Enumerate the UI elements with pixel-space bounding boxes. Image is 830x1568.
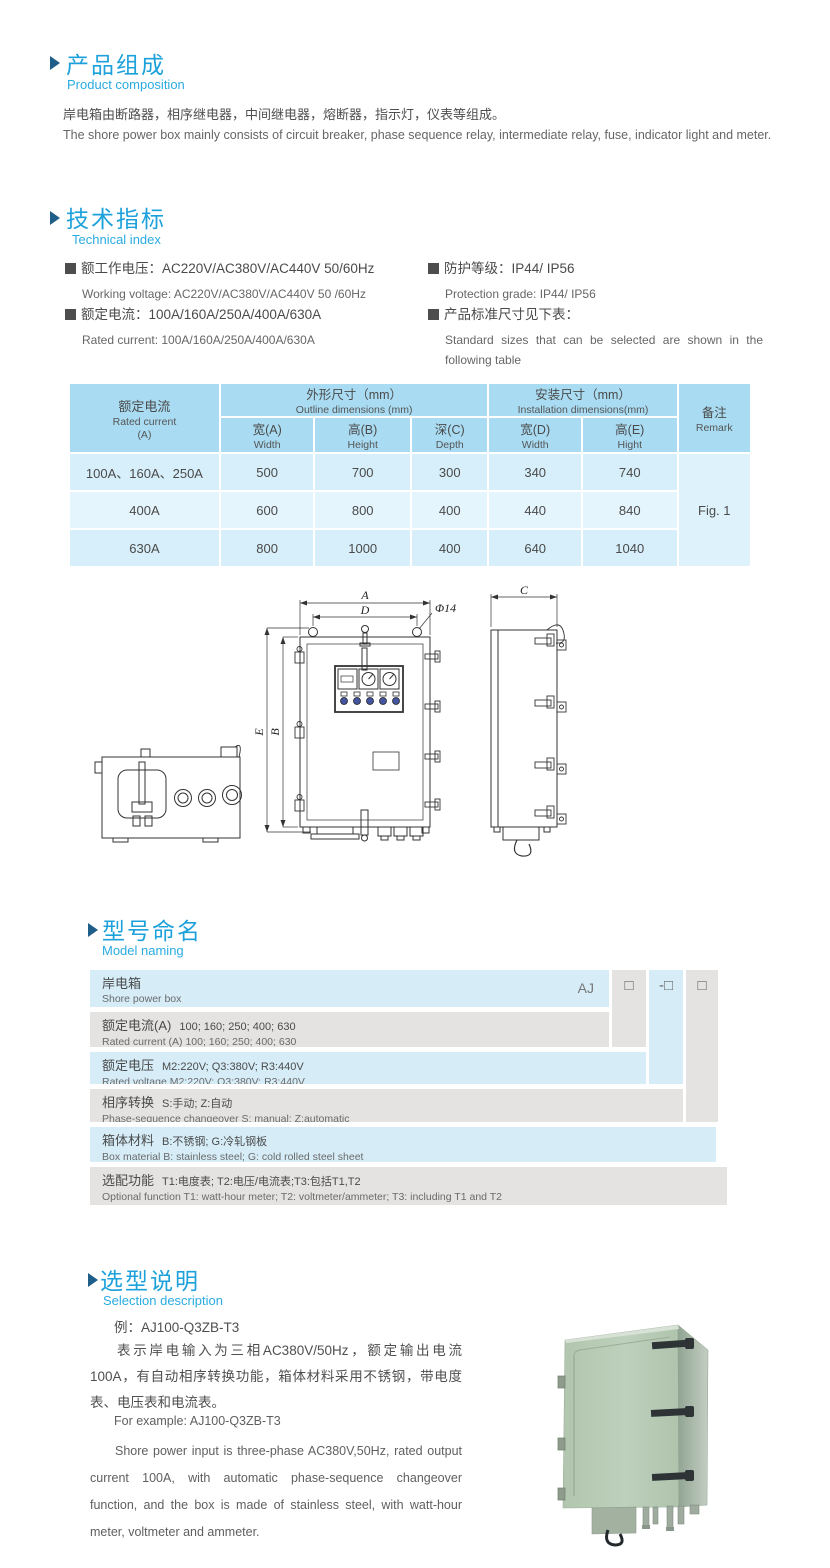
square-bullet-icon	[65, 263, 76, 274]
dim-label-d: D	[360, 603, 370, 617]
col-header-depth-c: 深(C)Depth	[412, 418, 487, 452]
section-title-product-composition: 产品组成	[66, 46, 166, 80]
dim-label-e: E	[252, 728, 266, 737]
section-arrow-icon	[50, 211, 60, 225]
model-prefix: AJ	[578, 980, 594, 996]
col-header-width-a: 宽(A)Width	[221, 418, 314, 452]
composition-text-en: The shore power box mainly consists of c…	[63, 128, 771, 142]
model-code-column-voltage: -□	[646, 970, 683, 1084]
figure-technical-drawing: A D Φ14 E B C	[85, 580, 585, 880]
spec-rated-current: 额定电流：100A/160A/250A/400A/630A Rated curr…	[65, 303, 415, 350]
code-box: □	[686, 977, 718, 994]
composition-text-cn: 岸电箱由断路器，相序继电器，中间继电器，熔断器，指示灯，仪表等组成。	[63, 104, 505, 123]
section-subtitle-model-naming: Model naming	[102, 943, 184, 958]
col-header-rated-current: 额定电流 Rated current (A)	[70, 384, 219, 452]
section-title-technical-index: 技术指标	[66, 200, 166, 234]
col-group-outline-dimensions: 外形尺寸（mm） Outline dimensions (mm)	[221, 384, 488, 416]
dim-label-b: B	[268, 728, 282, 736]
spec-protection-grade-cn: 防护等级：IP44/ IP56	[444, 261, 575, 276]
square-bullet-icon	[428, 263, 439, 274]
dim-label-a: A	[360, 588, 369, 602]
model-row-shore-power-box: 岸电箱 Shore power box AJ	[90, 970, 610, 1007]
selection-example-cn: 例：AJ100-Q3ZB-T3	[114, 1316, 239, 1336]
code-box: -□	[649, 977, 683, 994]
selection-example-en: For example: AJ100-Q3ZB-T3	[114, 1414, 281, 1428]
col-header-hight-e: 高(E)Hight	[583, 418, 677, 452]
section-arrow-icon	[88, 923, 98, 937]
spec-protection-grade: 防护等级：IP44/ IP56 Protection grade: IP44/ …	[428, 257, 768, 304]
model-code-column-current: □	[609, 970, 646, 1047]
spec-protection-grade-en: Protection grade: IP44/ IP56	[445, 284, 768, 304]
col-header-height-b: 高(B)Height	[315, 418, 410, 452]
spec-rated-current-en: Rated current: 100A/160A/250A/400A/630A	[82, 330, 415, 350]
selection-body-en: Shore power input is three-phase AC380V,…	[90, 1438, 462, 1546]
model-row-rated-voltage: 额定电压M2:220V; Q3:380V; R3:440V Rated volt…	[90, 1052, 683, 1084]
spec-working-voltage-en: Working voltage: AC220V/AC380V/AC440V 50…	[82, 284, 415, 304]
section-title-selection: 选型说明	[100, 1262, 200, 1296]
table-row: 100A、160A、250A 500 700 300 340 740 Fig. …	[70, 454, 750, 490]
col-header-width-d: 宽(D)Width	[489, 418, 581, 452]
spec-standard-sizes: 产品标准尺寸见下表： Standard sizes that can be se…	[428, 303, 768, 370]
model-row-optional-function: 选配功能T1:电度表; T2:电压/电流表;T3:包括T1,T2 Optiona…	[90, 1167, 727, 1205]
square-bullet-icon	[428, 309, 439, 320]
table-row: 630A 800 1000 400 640 1040	[70, 530, 750, 566]
spec-standard-sizes-cn: 产品标准尺寸见下表：	[444, 307, 579, 322]
section-subtitle-selection: Selection description	[103, 1293, 223, 1308]
col-header-remark: 备注 Remark	[679, 384, 750, 452]
size-table: 额定电流 Rated current (A) 外形尺寸（mm） Outline …	[68, 382, 752, 568]
square-bullet-icon	[65, 309, 76, 320]
dim-label-c: C	[520, 583, 529, 597]
section-arrow-icon	[88, 1273, 98, 1287]
section-subtitle-technical-index: Technical index	[72, 232, 161, 247]
model-row-box-material: 箱体材料B:不锈钢; G:冷轧钢板 Box material B: stainl…	[90, 1127, 716, 1162]
selection-body-cn: 表示岸电输入为三相AC380V/50Hz，额定输出电流100A，有自动相序转换功…	[90, 1338, 462, 1416]
catalog-page: 产品组成 Product composition 岸电箱由断路器，相序继电器，中…	[0, 0, 830, 1568]
model-row-rated-current: 额定电流(A)100; 160; 250; 400; 630 Rated cur…	[90, 1012, 646, 1047]
spec-working-voltage-cn: 额工作电压：AC220V/AC380V/AC440V 50/60Hz	[81, 261, 374, 276]
product-photo-shore-power-box	[540, 1312, 810, 1557]
remark-value: Fig. 1	[679, 454, 750, 566]
hole-diameter-label: Φ14	[435, 601, 456, 615]
spec-standard-sizes-en: Standard sizes that can be selected are …	[445, 330, 763, 370]
section-arrow-icon	[50, 56, 60, 70]
section-title-model-naming: 型号命名	[102, 912, 202, 946]
table-row: 400A 600 800 400 440 840	[70, 492, 750, 528]
code-box: □	[612, 977, 646, 994]
model-row-phase-sequence: 相序转换S:手动; Z:自动 Phase-sequence changeover…	[90, 1089, 718, 1122]
model-code-column-function: □	[683, 970, 718, 1122]
section-subtitle-product-composition: Product composition	[67, 77, 185, 92]
col-group-installation-dimensions: 安装尺寸（mm） Installation dimensions(mm)	[489, 384, 676, 416]
spec-rated-current-cn: 额定电流：100A/160A/250A/400A/630A	[81, 307, 321, 322]
spec-working-voltage: 额工作电压：AC220V/AC380V/AC440V 50/60Hz Worki…	[65, 257, 415, 304]
